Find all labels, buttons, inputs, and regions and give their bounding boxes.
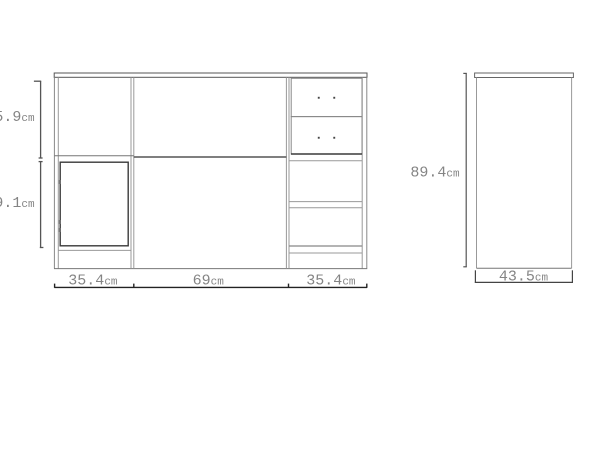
svg-text:35.4cm: 35.4cm xyxy=(306,273,356,290)
svg-text:43.5cm: 43.5cm xyxy=(499,269,549,286)
svg-text:5.9cm: 5.9cm xyxy=(0,109,35,126)
svg-text:35.4cm: 35.4cm xyxy=(68,273,118,290)
svg-text:89.4cm: 89.4cm xyxy=(410,165,460,182)
svg-text:9.1cm: 9.1cm xyxy=(0,195,35,212)
svg-text:69cm: 69cm xyxy=(193,273,225,290)
